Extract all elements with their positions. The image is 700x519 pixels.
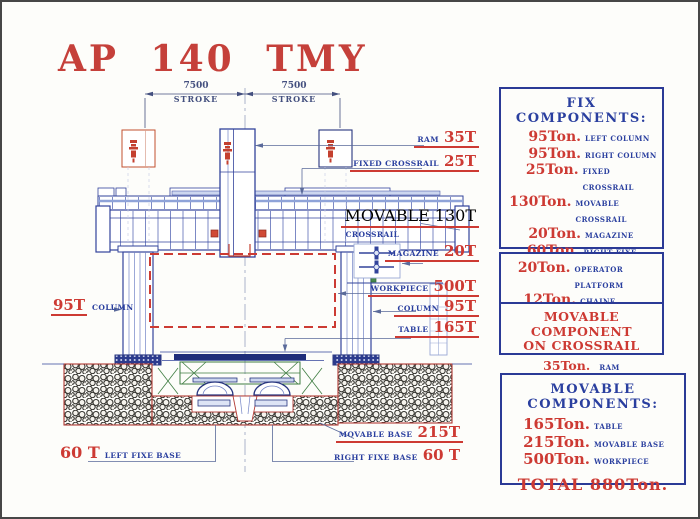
callout-label: COLUMN [397, 304, 438, 313]
dimension-label: STROKE [152, 95, 240, 103]
component-label: TABLE [594, 419, 623, 435]
callout-value: 215T [418, 425, 460, 440]
extra-components-panel: 20Ton. OPERATOR PLATFORM 12Ton. CHAINE M… [499, 252, 664, 304]
callout-right-fixe-base: RIGHT FIXE BASE 60 T [331, 448, 463, 463]
weight-value: 215Ton. [502, 435, 590, 451]
component-row: 20Ton. MAGAZINE [501, 227, 662, 244]
callout-label: MOVABLE [344, 206, 429, 225]
callout-workpiece: WORKPIECE 500T [368, 279, 479, 297]
component-label: OPERATOR PLATFORM [575, 262, 663, 293]
component-row: 95Ton. RIGHT COLUMN [501, 147, 662, 164]
callout-value: 20T [444, 244, 476, 259]
callout-value: 60 T [423, 448, 460, 463]
callout-label: RIGHT FIXE BASE [334, 453, 418, 462]
component-label: MAGAZINE [585, 228, 634, 244]
component-row: 25Ton. FIXED CROSSRAIL [501, 163, 662, 195]
dimension-value: 7500 [250, 82, 338, 91]
dimension-value: 7500 [152, 82, 240, 91]
panel-title: FIX COMPONENTS: [501, 89, 662, 126]
callout-label: MOVABLE BASE [339, 430, 413, 439]
weight-value: 35Ton. [543, 358, 590, 373]
weight-value: 95Ton. [501, 147, 581, 163]
component-row: 95Ton. LEFT COLUMN [501, 130, 662, 147]
callout-value: 95T [444, 299, 476, 314]
drawing-sheet: AP 140 TMY 7500 STROKE 7500 STROKE RAM 3… [0, 0, 700, 519]
callout-movable-base: MOVABLE BASE 215T [336, 425, 463, 443]
component-label: WORKPIECE [594, 454, 649, 470]
callout-magazine: MAGAZINE 20T [385, 244, 479, 262]
callout-label: COLUMN [92, 303, 133, 312]
callout-movable-crossrail: MOVABLE 130T CROSSRAIL [341, 206, 479, 239]
callout-right-column: COLUMN 95T [394, 299, 479, 317]
component-label: MOVABLE BASE [594, 437, 664, 453]
callout-label: CROSSRAIL [341, 228, 479, 239]
callout-value: 60 T [60, 445, 100, 461]
component-label: RIGHT COLUMN [585, 148, 657, 164]
weight-value: 130Ton. [501, 195, 572, 211]
weight-value: 95Ton. [501, 130, 581, 146]
callout-ram: RAM 35T [414, 130, 479, 148]
panel-total: TOTAL 880Ton. [502, 475, 684, 494]
callout-label: WORKPIECE [371, 284, 429, 293]
component-row: 130Ton. MOVABLE CROSSRAIL [501, 195, 662, 227]
movable-components-panel: MOVABLE COMPONENTS: 165Ton. TABLE 215Ton… [500, 373, 686, 485]
callout-value: 165T [434, 320, 476, 335]
panel-line: MOVABLE COMPONENT [501, 310, 662, 339]
component-row: 165Ton. TABLE [502, 417, 684, 435]
callout-value: 130T [435, 206, 476, 225]
workpiece-outline [150, 254, 335, 327]
component-row: 20Ton. OPERATOR PLATFORM [501, 261, 662, 293]
crossrail-component-panel: MOVABLE COMPONENT ON CROSSRAIL 35Ton. RA… [499, 302, 664, 355]
page-title: AP 140 TMY [58, 38, 368, 80]
dimension-label: STROKE [250, 95, 338, 103]
component-label: FIXED CROSSRAIL [583, 164, 662, 195]
callout-value: 95T [51, 298, 87, 316]
component-label: MOVABLE CROSSRAIL [576, 196, 662, 227]
dimension-left: 7500 STROKE [152, 82, 240, 103]
callout-value: 35T [444, 130, 476, 145]
panel-line: ON CROSSRAIL [501, 339, 662, 354]
callout-label: RAM [417, 135, 439, 144]
weight-value: 25Ton. [501, 163, 579, 179]
callout-label: TABLE [398, 325, 428, 334]
callout-left-fixe-base: 60 T LEFT FIXE BASE [57, 445, 184, 461]
fix-components-panel: FIX COMPONENTS: 95Ton. LEFT COLUMN 95Ton… [499, 87, 664, 249]
weight-value: 500Ton. [502, 452, 590, 468]
callout-value: 500T [434, 279, 476, 294]
callout-label: FIXED CROSSRAIL [353, 159, 439, 168]
callout-label: LEFT FIXE BASE [105, 451, 181, 460]
weight-value: 20Ton. [501, 227, 581, 243]
component-row: 35Ton. RAM [501, 355, 662, 374]
weight-value: 20Ton. [501, 261, 571, 277]
component-label: RAM [599, 363, 620, 372]
panel-title: MOVABLE COMPONENTS: [502, 375, 684, 412]
callout-table: TABLE 165T [395, 320, 479, 338]
callout-fixed-crossrail: FIXED CROSSRAIL 25T [350, 154, 479, 172]
callout-label: MAGAZINE [388, 249, 439, 258]
callout-value: 25T [444, 154, 476, 169]
weight-value: 165Ton. [502, 417, 590, 433]
dimension-right: 7500 STROKE [250, 82, 338, 103]
component-label: LEFT COLUMN [585, 131, 650, 147]
callout-left-column: 95T COLUMN [48, 298, 137, 316]
component-row: 500Ton. WORKPIECE [502, 452, 684, 470]
